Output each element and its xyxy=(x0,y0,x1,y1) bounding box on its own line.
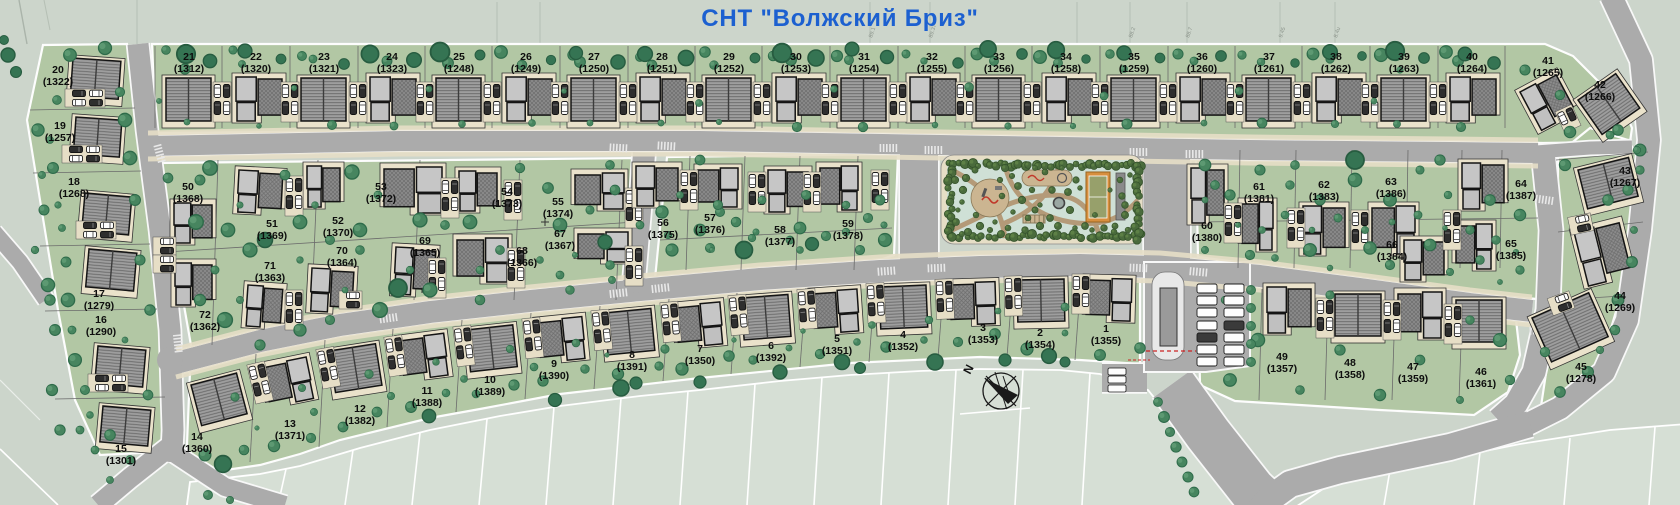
svg-text:(1250): (1250) xyxy=(579,63,609,75)
svg-text:(1257): (1257) xyxy=(45,132,75,144)
svg-text:(1380): (1380) xyxy=(1192,232,1222,244)
svg-text:(1278): (1278) xyxy=(1566,373,1596,385)
svg-text:38: 38 xyxy=(1330,51,1342,63)
svg-text:28: 28 xyxy=(656,51,668,63)
svg-text:22: 22 xyxy=(250,51,262,63)
svg-text:9: 9 xyxy=(551,358,557,370)
svg-text:(1392): (1392) xyxy=(756,352,786,364)
svg-text:(1385): (1385) xyxy=(1496,250,1526,262)
svg-text:(1258): (1258) xyxy=(1051,63,1081,75)
svg-text:(1321): (1321) xyxy=(309,63,339,75)
svg-text:54: 54 xyxy=(501,186,513,198)
svg-text:62: 62 xyxy=(1318,179,1330,191)
svg-text:(1269): (1269) xyxy=(1605,302,1635,314)
svg-text:12: 12 xyxy=(354,403,366,415)
svg-text:17: 17 xyxy=(93,288,105,300)
svg-text:(1388): (1388) xyxy=(412,397,442,409)
svg-text:(1301): (1301) xyxy=(106,455,136,467)
svg-text:26: 26 xyxy=(520,51,532,63)
svg-text:7: 7 xyxy=(697,343,703,355)
svg-text:5: 5 xyxy=(834,333,840,345)
svg-text:(1390): (1390) xyxy=(539,370,569,382)
svg-text:8: 8 xyxy=(629,349,635,361)
svg-text:52: 52 xyxy=(332,215,344,227)
svg-text:(1387): (1387) xyxy=(1506,190,1536,202)
svg-text:(1252): (1252) xyxy=(714,63,744,75)
svg-text:(1373): (1373) xyxy=(492,198,522,210)
svg-text:(1323): (1323) xyxy=(377,63,407,75)
svg-text:(1374): (1374) xyxy=(543,208,573,220)
svg-text:27: 27 xyxy=(588,51,600,63)
svg-text:43: 43 xyxy=(1619,165,1631,177)
svg-text:58: 58 xyxy=(774,224,786,236)
svg-text:(1251): (1251) xyxy=(647,63,677,75)
svg-text:25: 25 xyxy=(453,51,465,63)
svg-text:29: 29 xyxy=(723,51,735,63)
svg-text:59: 59 xyxy=(842,218,854,230)
svg-text:(1365): (1365) xyxy=(410,247,440,259)
svg-text:18: 18 xyxy=(68,176,80,188)
svg-text:(1383): (1383) xyxy=(1309,191,1339,203)
svg-text:(1268): (1268) xyxy=(59,188,89,200)
svg-text:46: 46 xyxy=(1475,366,1487,378)
svg-text:69: 69 xyxy=(419,235,431,247)
svg-text:(1371): (1371) xyxy=(275,430,305,442)
svg-text:(1367): (1367) xyxy=(545,240,575,252)
svg-text:(1259): (1259) xyxy=(1119,63,1149,75)
svg-text:16: 16 xyxy=(95,314,107,326)
svg-text:(1358): (1358) xyxy=(1335,369,1365,381)
svg-text:68: 68 xyxy=(516,245,528,257)
svg-text:35: 35 xyxy=(1128,51,1140,63)
svg-text:(1357): (1357) xyxy=(1267,363,1297,375)
svg-text:24: 24 xyxy=(386,51,398,63)
svg-text:(1369): (1369) xyxy=(257,230,287,242)
svg-text:(1389): (1389) xyxy=(475,386,505,398)
svg-text:55: 55 xyxy=(552,196,564,208)
svg-text:15: 15 xyxy=(115,443,127,455)
svg-text:3: 3 xyxy=(980,322,986,334)
svg-text:30: 30 xyxy=(790,51,802,63)
svg-text:65: 65 xyxy=(1505,238,1517,250)
svg-text:(1322): (1322) xyxy=(43,76,73,88)
svg-text:(1368): (1368) xyxy=(173,193,203,205)
svg-text:66: 66 xyxy=(1386,239,1398,251)
svg-text:(1290): (1290) xyxy=(86,326,116,338)
svg-text:49: 49 xyxy=(1276,351,1288,363)
svg-text:71: 71 xyxy=(264,260,276,272)
svg-text:64: 64 xyxy=(1515,178,1527,190)
svg-text:(1377): (1377) xyxy=(765,236,795,248)
svg-text:19: 19 xyxy=(54,120,66,132)
svg-text:(1366): (1366) xyxy=(507,257,537,269)
svg-text:(1359): (1359) xyxy=(1398,373,1428,385)
svg-text:40: 40 xyxy=(1466,51,1478,63)
svg-text:(1375): (1375) xyxy=(648,229,678,241)
svg-text:45: 45 xyxy=(1575,361,1587,373)
svg-text:60: 60 xyxy=(1201,220,1213,232)
svg-text:4: 4 xyxy=(900,329,906,341)
svg-text:(1352): (1352) xyxy=(888,341,918,353)
svg-text:(1248): (1248) xyxy=(444,63,474,75)
svg-text:32: 32 xyxy=(926,51,938,63)
svg-text:(1267): (1267) xyxy=(1610,177,1640,189)
svg-text:33: 33 xyxy=(993,51,1005,63)
svg-text:(1378): (1378) xyxy=(833,230,863,242)
svg-text:47: 47 xyxy=(1407,361,1419,373)
svg-text:(1353): (1353) xyxy=(968,334,998,346)
svg-text:6: 6 xyxy=(768,340,774,352)
svg-text:(1320): (1320) xyxy=(241,63,271,75)
svg-text:42: 42 xyxy=(1594,79,1606,91)
svg-text:СНТ "Волжский Бриз": СНТ "Волжский Бриз" xyxy=(701,5,978,32)
svg-text:56: 56 xyxy=(657,217,669,229)
svg-text:39: 39 xyxy=(1398,51,1410,63)
svg-text:(1350): (1350) xyxy=(685,355,715,367)
svg-text:41: 41 xyxy=(1542,55,1554,67)
svg-text:(1360): (1360) xyxy=(182,443,212,455)
svg-text:67: 67 xyxy=(554,228,566,240)
svg-text:(1376): (1376) xyxy=(695,224,725,236)
svg-text:(1381): (1381) xyxy=(1244,193,1274,205)
svg-text:(1382): (1382) xyxy=(345,415,375,427)
svg-text:20: 20 xyxy=(52,64,64,76)
svg-text:34: 34 xyxy=(1060,51,1072,63)
svg-text:(1354): (1354) xyxy=(1025,339,1055,351)
svg-text:(1351): (1351) xyxy=(822,345,852,357)
svg-text:(1391): (1391) xyxy=(617,361,647,373)
svg-text:(1264): (1264) xyxy=(1457,63,1487,75)
svg-text:13: 13 xyxy=(284,418,296,430)
svg-text:63: 63 xyxy=(1385,176,1397,188)
svg-text:1: 1 xyxy=(1103,323,1109,335)
svg-text:(1253): (1253) xyxy=(781,63,811,75)
svg-text:23: 23 xyxy=(318,51,330,63)
svg-text:(1260): (1260) xyxy=(1187,63,1217,75)
svg-text:2: 2 xyxy=(1037,327,1043,339)
svg-text:(1363): (1363) xyxy=(255,272,285,284)
svg-text:11: 11 xyxy=(421,385,432,397)
svg-text:61: 61 xyxy=(1253,181,1265,193)
svg-text:31: 31 xyxy=(858,51,870,63)
svg-text:(1384): (1384) xyxy=(1377,251,1407,263)
svg-text:10: 10 xyxy=(484,374,496,386)
svg-text:72: 72 xyxy=(199,309,211,321)
svg-text:14: 14 xyxy=(191,431,203,443)
svg-text:(1312): (1312) xyxy=(174,63,204,75)
svg-text:57: 57 xyxy=(704,212,716,224)
svg-text:48: 48 xyxy=(1344,357,1356,369)
svg-text:(1261): (1261) xyxy=(1254,63,1284,75)
svg-text:53: 53 xyxy=(375,181,387,193)
svg-text:(1372): (1372) xyxy=(366,193,396,205)
svg-text:(1386): (1386) xyxy=(1376,188,1406,200)
svg-text:70: 70 xyxy=(336,245,348,257)
svg-text:(1279): (1279) xyxy=(84,300,114,312)
svg-text:(1249): (1249) xyxy=(511,63,541,75)
svg-text:(1256): (1256) xyxy=(984,63,1014,75)
svg-text:(1364): (1364) xyxy=(327,257,357,269)
svg-text:21: 21 xyxy=(183,51,195,63)
svg-text:(1361): (1361) xyxy=(1466,378,1496,390)
svg-text:(1262): (1262) xyxy=(1321,63,1351,75)
svg-text:(1255): (1255) xyxy=(917,63,947,75)
svg-text:(1266): (1266) xyxy=(1585,91,1615,103)
svg-text:37: 37 xyxy=(1263,51,1275,63)
svg-text:(1263): (1263) xyxy=(1389,63,1419,75)
svg-text:(1254): (1254) xyxy=(849,63,879,75)
svg-text:(1265): (1265) xyxy=(1533,67,1563,79)
svg-text:(1362): (1362) xyxy=(190,321,220,333)
svg-text:(1370): (1370) xyxy=(323,227,353,239)
svg-text:36: 36 xyxy=(1196,51,1208,63)
svg-text:51: 51 xyxy=(266,218,278,230)
svg-text:44: 44 xyxy=(1614,290,1626,302)
svg-text:50: 50 xyxy=(182,181,194,193)
svg-text:(1355): (1355) xyxy=(1091,335,1121,347)
